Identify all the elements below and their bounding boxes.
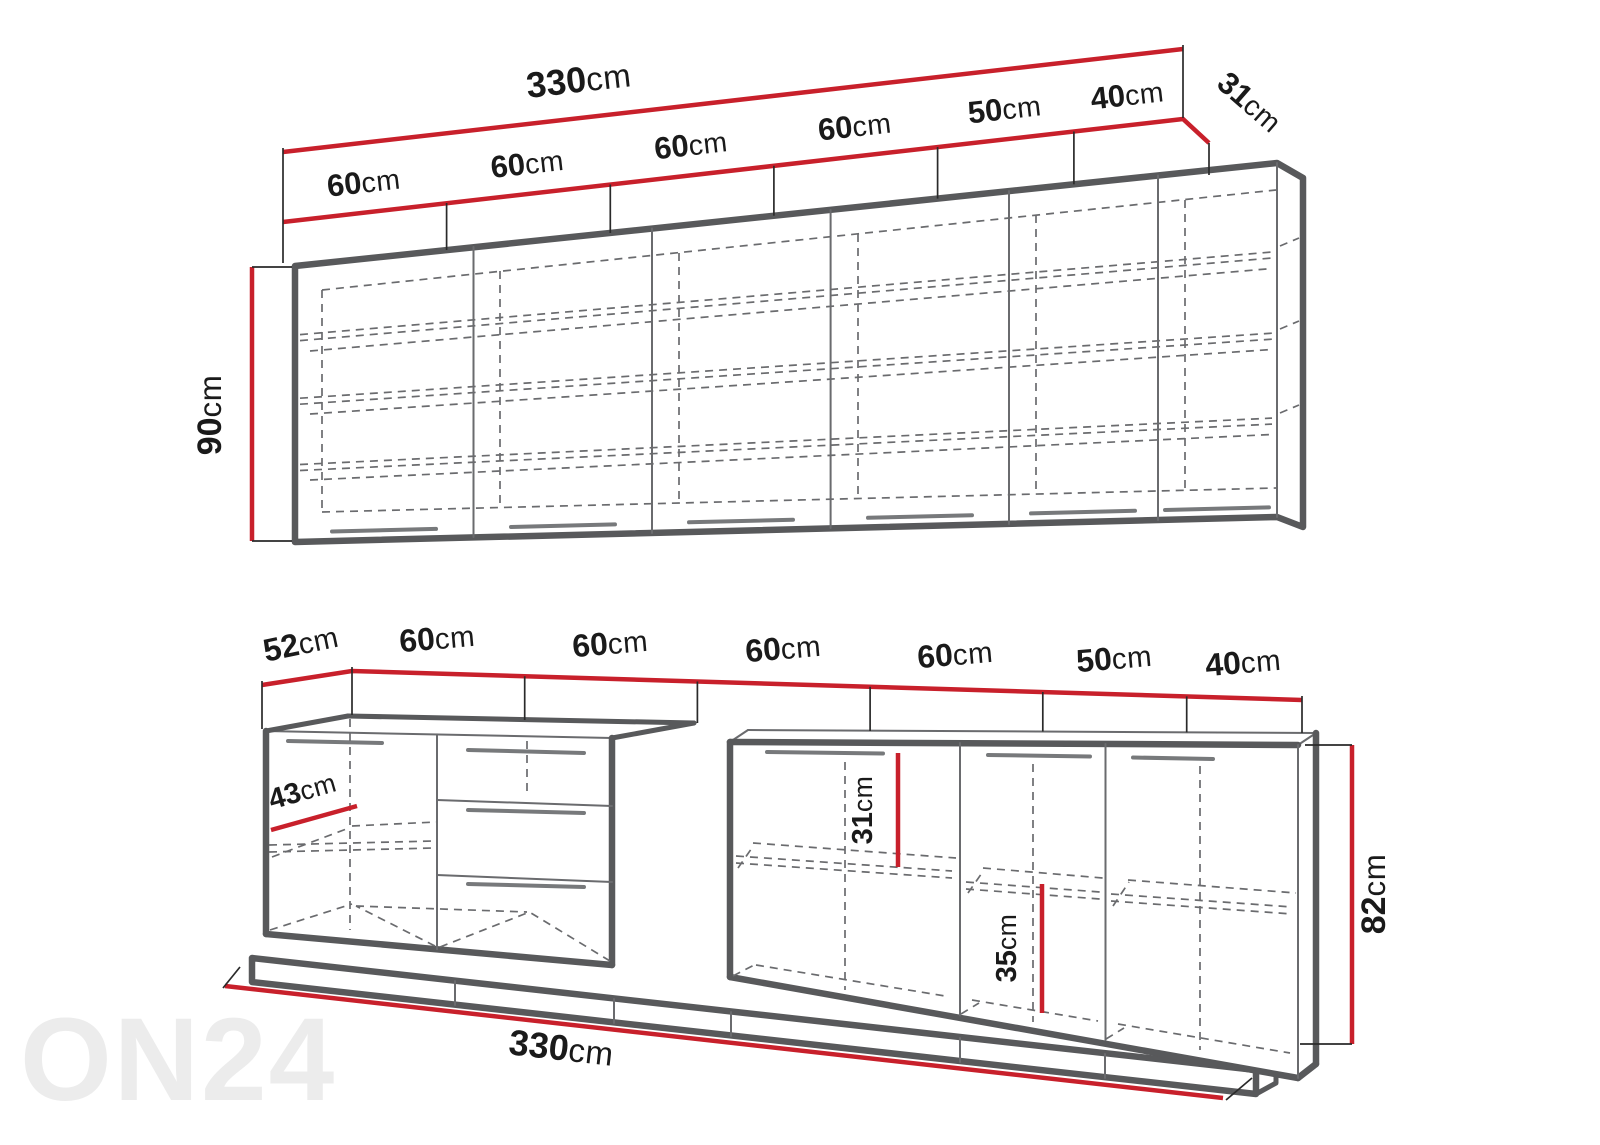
base-left-group bbox=[266, 716, 694, 965]
upper-seg-label-5: 50cm bbox=[966, 87, 1043, 130]
lower-segment-dim-line bbox=[262, 671, 1302, 700]
lower-cabinet-diagram: 52cm 60cm 60cm 60cm 60cm 50cm 40cm 43cm … bbox=[223, 617, 1393, 1100]
lower-seg-label-4: 60cm bbox=[916, 633, 995, 675]
kitchen-dimension-diagram: 330cm 60cm 60cm 60cm 60cm 50cm 40cm 31cm… bbox=[0, 0, 1600, 1145]
lower-cabinet-drawing bbox=[252, 716, 1316, 1094]
upper-seg-label-6: 40cm bbox=[1089, 73, 1166, 116]
upper-seg-label-2: 60cm bbox=[489, 142, 566, 185]
base-right-group bbox=[730, 730, 1316, 1078]
upper-dim-ticks bbox=[252, 45, 1209, 541]
lower-seg-label-1: 60cm bbox=[398, 617, 477, 659]
lower-shelf-top-label: 31cm bbox=[847, 776, 879, 845]
lower-seg-label-3: 60cm bbox=[744, 627, 823, 669]
upper-seg-label-3: 60cm bbox=[652, 123, 729, 166]
upper-dimensions: 330cm 60cm 60cm 60cm 60cm 50cm 40cm 31cm… bbox=[191, 45, 1289, 541]
lower-depth-label: 52cm bbox=[260, 618, 342, 669]
upper-depth-label: 31cm bbox=[1211, 65, 1289, 140]
upper-cabinet-dividers bbox=[474, 176, 1159, 538]
lower-seg-label-6: 40cm bbox=[1204, 641, 1283, 683]
lower-height-label: 82cm bbox=[1355, 854, 1393, 935]
upper-seg-label-1: 60cm bbox=[325, 161, 402, 204]
lower-shelf-bottom-label: 35cm bbox=[991, 914, 1023, 983]
lower-seg-label-2: 60cm bbox=[571, 622, 650, 664]
watermark: ON24 bbox=[20, 994, 336, 1126]
upper-cabinet-interior-dashed bbox=[300, 190, 1299, 512]
upper-total-label: 330cm bbox=[524, 53, 633, 106]
upper-seg-label-4: 60cm bbox=[816, 105, 893, 148]
upper-height-label: 90cm bbox=[191, 375, 229, 456]
lower-seg-label-5: 50cm bbox=[1075, 637, 1154, 679]
upper-cabinet-diagram: 330cm 60cm 60cm 60cm 60cm 50cm 40cm 31cm… bbox=[191, 45, 1303, 542]
